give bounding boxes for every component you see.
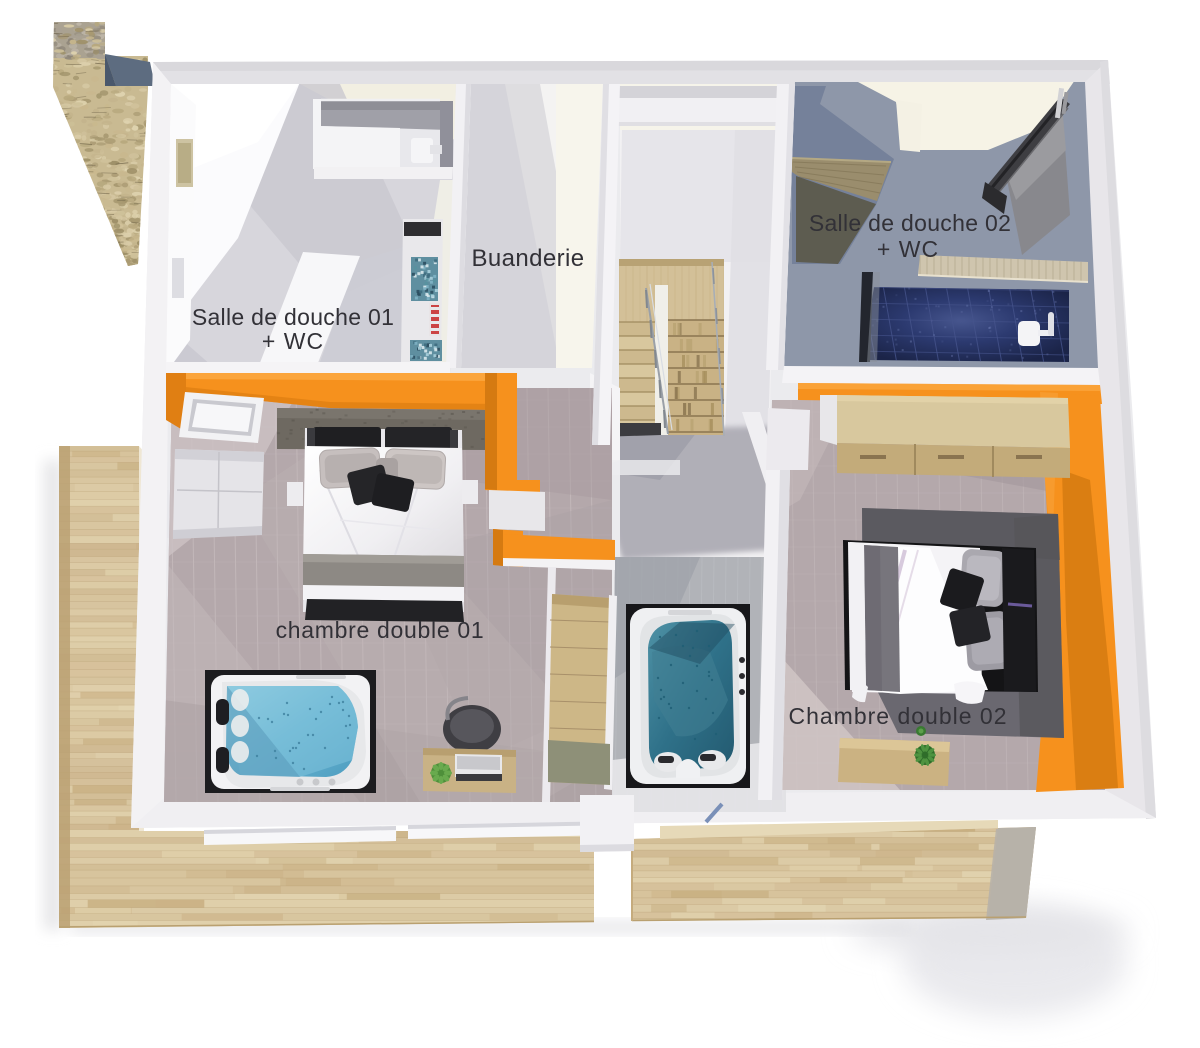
svg-text:chambre double 01: chambre double 01 [276, 617, 485, 643]
svg-text:Buanderie: Buanderie [471, 245, 584, 272]
svg-text:Salle de douche 01: Salle de douche 01 [192, 304, 394, 330]
svg-text:+ WC: + WC [877, 236, 939, 262]
svg-text:+ WC: + WC [262, 328, 324, 354]
svg-text:Salle de douche 02: Salle de douche 02 [809, 210, 1011, 236]
svg-text:Chambre double 02: Chambre double 02 [788, 703, 1007, 729]
